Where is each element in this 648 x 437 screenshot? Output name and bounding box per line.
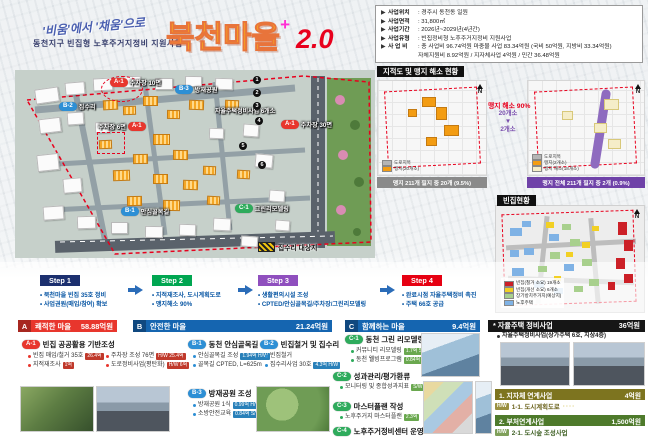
map-label-c1-green: C-1그린리모델링 — [235, 204, 289, 213]
step-2: Step 2 지적재조사, 도시계획도로맹지해소 90% — [152, 270, 252, 309]
bullet-dot-icon — [265, 355, 268, 358]
photo-green-remodeling — [421, 333, 480, 377]
legend-swatch — [504, 287, 514, 293]
cost-badge: 2.3억 — [404, 414, 420, 421]
info-value: 자체지원비 8.92억원 / 지자체사업 4억원 / 민간 36.48억원 — [418, 52, 637, 61]
map-label-b2-repair: B-2집수리 — [59, 102, 96, 111]
poster: '비움'에서 '채움'으로 동천지구 빈집형 노후주거지정비 지원사업 북천마을… — [0, 0, 648, 436]
section-title: 함께하는 마을 — [358, 321, 452, 332]
legend-label: 집수리 대상지 — [278, 242, 317, 252]
number-marker-1: 1 — [253, 76, 261, 84]
building-block — [570, 239, 580, 246]
photo-center-poster — [475, 381, 492, 434]
step-bullet: 사업권원(매입/참여) 확보 — [40, 301, 146, 310]
building-block — [510, 228, 522, 236]
building-block — [213, 218, 232, 232]
hatch-swatch-icon — [258, 242, 275, 252]
legend-swatch — [532, 166, 542, 172]
cost-badge: 4.3억 H/W — [313, 362, 340, 369]
building-block — [444, 125, 459, 136]
info-value: : 경주시 동천동 일원 — [418, 9, 637, 18]
b2-pill: B-2 — [260, 340, 278, 349]
b3-pill: B-3 — [188, 389, 206, 398]
section-budget: 21.24억원 — [296, 321, 332, 332]
item-text: 안심골목길 조성 — [198, 352, 238, 361]
c2-pill: C-2 — [333, 372, 351, 381]
legend-row: 맹지 해소(18개소) — [532, 166, 579, 172]
label-text: 주차장 30면 — [301, 120, 332, 129]
building-block — [574, 286, 583, 292]
photo-jayul-render-1 — [500, 342, 570, 386]
subsection-title: 성과관리/평가환류 — [354, 371, 410, 382]
title-main: 북천마을 — [166, 20, 280, 55]
annotation-percent: 맹지 해소 90% — [488, 100, 528, 110]
a1-col2: 주차장 조성 76면H/W 25.4억 도로정비사업(평탄화)H/W 6억 — [106, 352, 186, 370]
bullet-dot-icon — [106, 355, 109, 358]
section-c-header: C 함께하는 마을 9.4억원 — [345, 320, 480, 332]
subsection-title: 방재공원 조성 — [209, 388, 252, 399]
section-a-header: A 쾌적한 마을 58.88억원 — [18, 320, 117, 332]
linked-project-1-header: 1. 지자체 연계사업 4억원 — [495, 389, 645, 400]
step-bullet: 생활편의시설 조성 — [258, 292, 396, 301]
cadastral-section-title: 지적도 및 맹지 해소 현황 — [377, 66, 464, 77]
title-version: 2.0 — [296, 24, 334, 54]
building-block — [564, 264, 574, 271]
bullet-dot-icon — [351, 359, 354, 362]
map-note-jayul: 자율주택정비사업 6개소 — [215, 106, 275, 115]
info-row-location: ▶사업위치: 경주시 동천동 일원 — [381, 9, 637, 18]
c2-items: 모니터링 및 종합성과지표S/W — [340, 383, 420, 392]
list-item: 골목길 CPTED, L=625m — [193, 361, 259, 370]
map-label-b1-alley: B-1안심골목길 — [121, 207, 169, 216]
subsection-title: 동천 그린 리모델링 — [366, 334, 425, 345]
a1-pill: A-1 — [110, 78, 128, 87]
subsection-b3-head: B-3방재공원 조성 — [188, 388, 252, 399]
label-text: 집수리 — [79, 102, 96, 111]
item-text: 소방안전교육 — [198, 410, 231, 419]
building-block — [111, 222, 128, 234]
info-label: 사업면적 — [388, 18, 418, 27]
subsection-title: 빈집 공공활용 기반조성 — [43, 339, 115, 350]
label-text: 그린리모델링 — [255, 204, 289, 213]
site-3d-map: A-1주차장 10면 B-2집수리 B-3방재공원 주차장 6면A-1 A-1주… — [15, 70, 375, 258]
list-item: 모니터링 및 종합성과지표S/W — [340, 383, 420, 392]
building-block — [127, 196, 142, 206]
item-text: 1-1. 도시계획도로 — [512, 402, 560, 411]
legend-swatch — [382, 166, 392, 172]
building-block — [67, 111, 85, 125]
item-text: 빈집 매입/철거 35호 — [33, 352, 83, 361]
project-subtitle: 동천지구 빈집형 노후주거지정비 지원사업 — [33, 38, 183, 49]
legend-label: 노후주택 — [516, 300, 533, 306]
building-block — [408, 109, 417, 117]
subsection-c3: C-3마스터플랜 작성 — [333, 401, 403, 412]
item-text: 노후주거지 마스터플랜 — [345, 413, 402, 422]
bullet-arrow-icon: ▶ — [381, 18, 388, 27]
subsection-c2: C-2성과관리/평가환류 — [333, 371, 410, 382]
list-item: 주차장 조성 76면H/W 25.4억 — [106, 352, 186, 361]
c1-pill: C-1 — [235, 204, 253, 213]
north-compass-icon: N — [477, 84, 483, 95]
section-letter: C — [345, 320, 358, 332]
step-1-pill: Step 1 — [40, 275, 80, 286]
bullet-dot-icon — [193, 355, 196, 358]
building-block — [562, 111, 573, 120]
subsection-a1: A-1빈집 공공활용 기반조성 — [22, 339, 115, 350]
list-item: 지적재조사1억 — [28, 361, 106, 370]
building-block — [594, 123, 607, 133]
item-text: 집수리사업 30호 — [270, 361, 311, 370]
section-letter: A — [18, 320, 31, 332]
building-block — [189, 100, 204, 111]
bullet-dot-icon — [193, 364, 196, 367]
cadastral-map-after: N 도로지목 맹지(2개소) 맹지 해소(18개소) — [527, 80, 645, 176]
list-item: 방재공원 1식0.99억 H/W — [193, 401, 253, 410]
north-compass-icon: N — [635, 84, 641, 95]
subsection-c1-head: C-1동천 그린 리모델링 — [345, 334, 424, 345]
building-block — [589, 279, 599, 286]
building-block — [616, 258, 625, 269]
info-value: : 31,800㎡ — [418, 18, 637, 27]
building-block — [436, 107, 447, 120]
building-block — [422, 97, 436, 107]
item-text: 모니터링 및 종합성과지표 — [345, 383, 409, 392]
step-2-pill: Step 2 — [152, 275, 192, 286]
cadastral-legend-left: 도로지목 맹지(20개소) — [382, 160, 419, 172]
list-item: 동천 웰빙프로그램0.84억 S/W — [351, 356, 421, 365]
bullet-dot-icon — [28, 364, 31, 367]
building-block — [562, 224, 571, 230]
map-label-a1-parking30: A-1주차장 30면 — [281, 120, 332, 129]
item-text: 자율주택정비사업(상가주택 6호, 지상4층) — [502, 332, 606, 341]
building-block — [522, 221, 531, 227]
info-label: 사업유형 — [388, 35, 418, 44]
parking-zone-outline — [97, 132, 125, 154]
building-block — [215, 78, 233, 91]
info-row-period: ▶사업기간: 2026년~2029년(4년간) — [381, 26, 637, 35]
section-title: 안전한 마을 — [146, 321, 296, 332]
subsection-title: 빈집철거 및 집수리 — [281, 339, 340, 350]
building-block — [183, 180, 198, 191]
label-text: 주차장 10면 — [130, 78, 161, 87]
a1-pill: A-1 — [22, 340, 40, 349]
item-text: 도로정비사업(평탄화) — [111, 361, 165, 370]
item-text: 골목길 CPTED, L=625m — [198, 361, 262, 370]
building-block — [566, 252, 573, 257]
subsection-c2-head: C-2성과관리/평가환류 — [333, 371, 410, 382]
info-row-budget-cont: 자체지원비 8.92억원 / 지자체사업 4억원 / 민간 36.48억원 — [381, 52, 637, 61]
b1-pill: B-1 — [188, 340, 206, 349]
building-block — [179, 224, 196, 237]
step-4-pill: Step 4 — [402, 275, 442, 286]
item-text: 주차장 조성 76면 — [111, 352, 154, 361]
building-block — [36, 153, 60, 172]
building-block — [173, 150, 188, 160]
item-text: 커뮤니티 리모델링 — [356, 347, 402, 356]
bullet-dot-icon — [497, 335, 500, 338]
building-block — [549, 234, 559, 241]
a1-pill: A-1 — [128, 122, 146, 131]
linked-budget: 4억원 — [625, 390, 645, 400]
section-letter: B — [133, 320, 146, 332]
subsection-title: 마스터플랜 작성 — [354, 401, 404, 412]
jayul-bullet: 자율주택정비사업(상가주택 6호, 지상4층) — [497, 332, 606, 341]
label-text: 방재공원 — [195, 85, 218, 94]
dotted-trail: ···· — [563, 403, 576, 410]
photo-park-render — [256, 386, 330, 432]
list-item: 소방안전교육0.84억 S/W — [193, 410, 253, 419]
building-block — [153, 174, 168, 184]
building-block — [113, 170, 130, 182]
list-item: 안심골목길 조성1.94억 H/W — [193, 352, 259, 361]
step-3: Step 3 생활편의시설 조성CPTED/안심골목길/주차장/그린리모델링 — [258, 270, 396, 309]
building-block — [209, 128, 224, 140]
building-block — [43, 205, 65, 220]
info-value: : 2026년~2029년(4년간) — [418, 26, 637, 35]
info-label: 사 업 비 — [388, 43, 418, 52]
a1-col1: 빈집 매입/철거 35호26.4억 지적재조사1억 — [28, 352, 106, 370]
cadastral-caption-after: 맹지 전체 211개 필지 중 2개 (0.9%) — [527, 177, 645, 188]
c1-items: 커뮤니티 리모델링1.7억 S/W 동천 웰빙프로그램0.84억 S/W — [351, 347, 421, 365]
legend-label: 맹지 해소(18개소) — [544, 166, 579, 172]
bullet-dot-icon — [340, 386, 343, 389]
subsection-b1-head: B-1동천 안심골목길 — [188, 339, 258, 350]
b3-pill: B-3 — [175, 85, 193, 94]
building-block — [243, 123, 260, 137]
vacant-section-title: 빈집현황 — [497, 195, 536, 206]
building-block — [38, 117, 62, 135]
bullet-dot-icon — [265, 364, 268, 367]
building-block — [207, 196, 220, 206]
photo-street-render-1 — [96, 386, 170, 432]
building-block — [524, 248, 534, 255]
building-block — [608, 139, 621, 149]
section-jayul-header: * 자율주택 정비사업 36억원 — [488, 320, 645, 332]
item-text: 지적재조사 — [33, 361, 61, 370]
hw-chip: H/W — [495, 429, 509, 436]
c1-pill: C-1 — [345, 335, 363, 344]
linked-title: 1. 지자체 연계사업 — [495, 390, 625, 400]
flow-arrow-icon — [380, 285, 395, 295]
section-b-header: B 안전한 마을 21.24억원 — [133, 320, 332, 332]
list-item: 집수리사업 30호4.3억 H/W — [265, 361, 331, 370]
vacant-legend: 빈집(철거 소요) 19개소 빈집(개선 소요) 6개소 장기방치주거지(예상지… — [501, 278, 564, 308]
list-item: 빈집철거 — [265, 352, 331, 361]
title-plus-icon: + — [280, 15, 290, 34]
list-item: 도로정비사업(평탄화)H/W 6억 — [106, 361, 186, 370]
info-label: 사업기간 — [388, 26, 418, 35]
item-text: 방재공원 1식 — [198, 401, 231, 410]
subsection-title: 동천 안심골목길 — [209, 339, 259, 350]
photo-masterplan-map — [423, 381, 473, 434]
page-title: 북천마을+2.0 — [166, 12, 334, 57]
bullet-arrow-icon: ▶ — [381, 9, 388, 18]
bullet-dot-icon — [106, 364, 109, 367]
c3-items: 노후주거지 마스터플랜2.3억 — [340, 413, 420, 422]
number-marker-2: 2 — [253, 89, 261, 97]
list-item: 노후주거지 마스터플랜2.3억 — [340, 413, 420, 422]
linked-title: 2. 부처연계사업 — [495, 416, 611, 426]
down-arrow-icon: ▼ — [488, 118, 528, 126]
legend-row: 맹지(20개소) — [382, 166, 419, 172]
building-block — [510, 250, 519, 257]
photo-alley-render-1 — [20, 386, 94, 432]
bullet-dot-icon — [351, 350, 354, 353]
number-marker-4: 4 — [255, 117, 263, 125]
building-block — [604, 99, 619, 110]
bullet-arrow-icon: ▶ — [381, 26, 388, 35]
flow-arrow-icon — [128, 285, 143, 295]
list-item: 자율주택정비사업(상가주택 6호, 지상4층) — [497, 332, 606, 341]
linked-project-1-item: H/W 1-1. 도시계획도로 ···· — [495, 402, 575, 411]
building-block — [550, 252, 560, 259]
building-block — [241, 235, 259, 247]
b2-items: 빈집철거 집수리사업 30호4.3억 H/W — [265, 352, 331, 370]
section-budget: 9.4억원 — [452, 321, 480, 332]
info-value: : 총 사업비 96.74억원 마중물 사업 83.34억원 (국비 50억원,… — [418, 43, 637, 52]
number-marker-6: 6 — [258, 161, 266, 169]
building-block — [608, 282, 615, 290]
north-compass-icon: N — [634, 209, 640, 220]
cadastral-caption-before: 맹지 211개 필지 중 20개 (9.5%) — [377, 177, 487, 188]
building-block — [592, 226, 599, 231]
b2-pill: B-2 — [59, 102, 77, 111]
item-text: 빈집철거 — [270, 352, 292, 361]
step-bullet: 지적재조사, 도시계획도로 — [152, 292, 252, 301]
legend-label: 맹지(20개소) — [394, 166, 419, 172]
subsection-b3: B-3방재공원 조성 — [188, 388, 252, 399]
subsection-c3-head: C-3마스터플랜 작성 — [333, 401, 403, 412]
map-label-a1-parking6: 주차장 6면A-1 — [98, 122, 146, 131]
repair-target-legend: 집수리 대상지 — [258, 242, 317, 252]
bullet-dot-icon — [340, 416, 343, 419]
info-row-budget: ▶사 업 비: 총 사업비 96.74억원 마중물 사업 83.34억원 (국비… — [381, 43, 637, 52]
b1-pill: B-1 — [121, 207, 139, 216]
cadastral-map-before: N 도로지목 맹지(20개소) — [377, 80, 487, 176]
building-block — [167, 110, 180, 119]
info-row-area: ▶사업면적: 31,800㎡ — [381, 18, 637, 27]
building-block — [237, 170, 250, 180]
linked-project-2-header: 2. 부처연계사업 1,500억원 — [495, 415, 645, 426]
section-budget: 58.88억원 — [81, 321, 117, 332]
subsection-c4: C-4노후주거정비센터 운영 — [333, 426, 424, 437]
project-info-box: ▶사업위치: 경주시 동천동 일원 ▶사업면적: 31,800㎡ ▶사업기간: … — [375, 5, 643, 63]
building-block — [538, 266, 547, 272]
subsection-c1: C-1동천 그린 리모델링 — [345, 334, 424, 345]
legend-row: 노후주택 — [504, 300, 561, 306]
section-title: * 자율주택 정비사업 — [488, 321, 619, 331]
building-block — [582, 259, 592, 266]
building-block — [582, 242, 590, 248]
map-label-a1-parking10: A-1주차장 10면 — [110, 78, 161, 87]
cost-badge: 26.4억 — [85, 353, 103, 360]
bullet-dot-icon — [28, 355, 31, 358]
info-label: 사업위치 — [388, 9, 418, 18]
building-block — [624, 274, 633, 283]
list-item: 커뮤니티 리모델링1.7억 S/W — [351, 347, 421, 356]
building-block — [77, 216, 96, 230]
subsection-b1: B-1동천 안심골목길 — [188, 339, 258, 350]
building-block — [62, 177, 82, 194]
building-block — [624, 240, 633, 251]
b1-items: 안심골목길 조성1.94억 H/W 골목길 CPTED, L=625m — [193, 352, 259, 370]
subsection-b2: B-2빈집철거 및 집수리 — [260, 339, 339, 350]
after-count: 2개소 — [488, 126, 528, 134]
bullet-dot-icon — [193, 413, 196, 416]
legend-swatch — [504, 281, 514, 287]
building-block — [133, 154, 148, 164]
building-block — [143, 96, 158, 106]
list-item: 빈집 매입/철거 35호26.4억 — [28, 352, 106, 361]
map-label-b3-park: B-3방재공원 — [175, 85, 217, 94]
building-block — [546, 222, 554, 228]
section-budget: 36억원 — [619, 321, 645, 331]
before-count: 20개소 — [488, 110, 528, 118]
cost-badge: H/W 6억 — [167, 362, 190, 369]
item-text: 동천 웰빙프로그램 — [356, 356, 402, 365]
subsection-title: 노후주거정비센터 운영 — [354, 426, 424, 437]
subsection-b2-head: B-2빈집철거 및 집수리 — [260, 339, 339, 350]
building-block — [269, 189, 286, 202]
a1-pill: A-1 — [281, 120, 299, 129]
blind-lot-annotation: 맹지 해소 90% 20개소 ▼ 2개소 — [488, 100, 528, 134]
building-block — [145, 226, 163, 238]
hw-chip: H/W — [495, 403, 509, 410]
building-block — [618, 222, 627, 235]
cadastral-legend-right: 도로지목 맹지(2개소) 맹지 해소(18개소) — [532, 154, 579, 172]
subsection-a1-head: A-1빈집 공공활용 기반조성 — [22, 339, 115, 350]
info-value: : 빈집정비형 노후주거지정비 지원사업 — [418, 35, 637, 44]
building-block — [153, 134, 170, 145]
subsection-c4-head: C-4노후주거정비센터 운영 — [333, 426, 424, 437]
step-bullet: 맹지해소 90% — [152, 301, 252, 310]
number-marker-5: 5 — [239, 142, 247, 150]
legend-swatch — [504, 300, 514, 306]
section-title: 쾌적한 마을 — [31, 321, 81, 332]
info-row-type: ▶사업유형: 빈집정비형 노후주거지정비 지원사업 — [381, 35, 637, 44]
c3-pill: C-3 — [333, 402, 351, 411]
step-bullet: CPTED/안심골목길/주차장/그린리모델링 — [258, 301, 396, 310]
building-block — [275, 219, 291, 231]
photo-jayul-render-2 — [573, 342, 645, 386]
building-block — [64, 81, 85, 96]
flow-arrow-icon — [238, 285, 253, 295]
label-text: 안심골목길 — [141, 207, 169, 216]
building-block — [426, 137, 437, 146]
bullet-arrow-icon: ▶ — [381, 35, 388, 44]
cost-badge: H/W 25.4억 — [156, 353, 185, 360]
cost-badge: 1억 — [63, 362, 74, 369]
label-text: 주차장 6면 — [98, 122, 126, 131]
building-block — [123, 106, 136, 115]
bullet-arrow-icon: ▶ — [381, 43, 388, 52]
bullet-dot-icon — [193, 404, 196, 407]
legend-swatch — [504, 293, 514, 299]
step-3-pill: Step 3 — [258, 275, 298, 286]
number-marker-3: 3 — [253, 102, 261, 110]
b3-items: 방재공원 1식0.99억 H/W 소방안전교육0.84억 S/W — [193, 401, 253, 419]
linked-budget: 1,500억원 — [611, 416, 645, 426]
c4-pill: C-4 — [333, 427, 351, 436]
building-block — [512, 268, 524, 276]
building-block — [203, 166, 216, 175]
